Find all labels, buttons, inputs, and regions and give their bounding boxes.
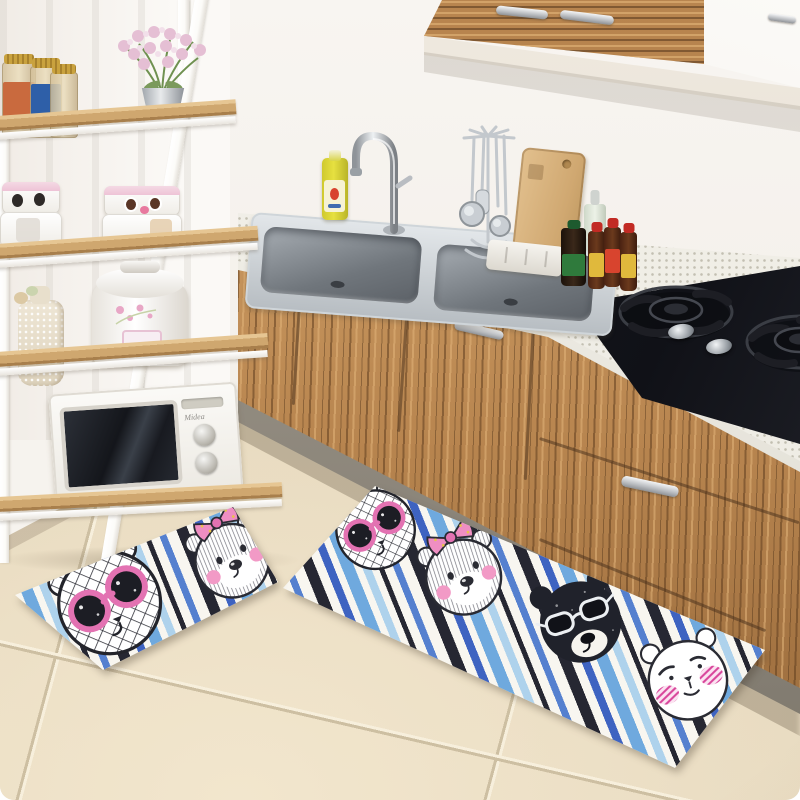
small-mat-wrap — [0, 0, 800, 800]
kitchen-product-photo: Midea — [0, 0, 800, 800]
small-mat — [5, 495, 295, 680]
